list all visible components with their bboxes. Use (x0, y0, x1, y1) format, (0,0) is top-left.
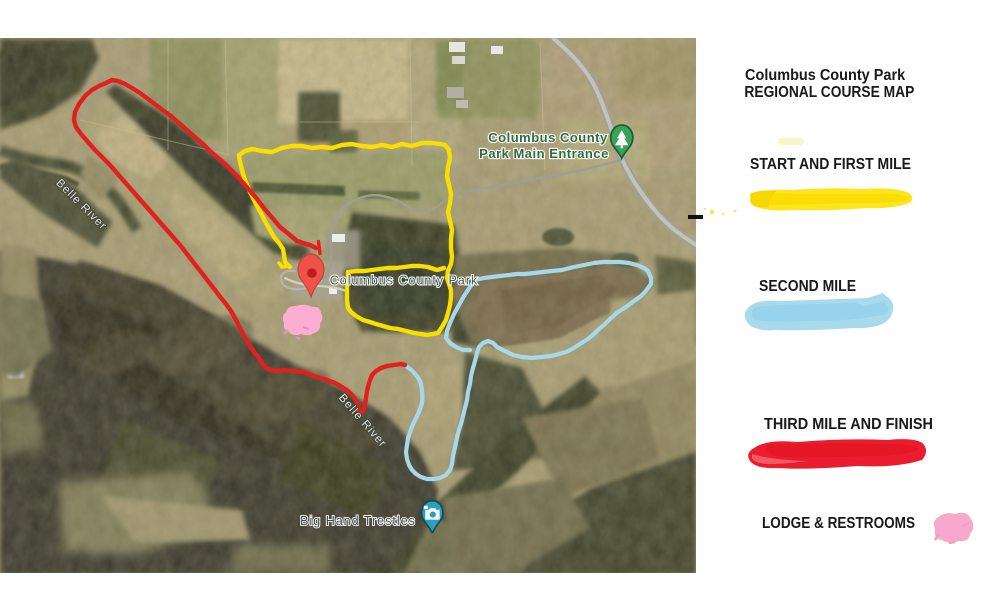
svg-text:Big Hand Trestles: Big Hand Trestles (300, 514, 416, 528)
svg-text:Park Main Entrance: Park Main Entrance (479, 146, 609, 161)
svg-text:Columbus County: Columbus County (488, 130, 608, 145)
svg-text:Columbus County Park: Columbus County Park (330, 274, 479, 288)
